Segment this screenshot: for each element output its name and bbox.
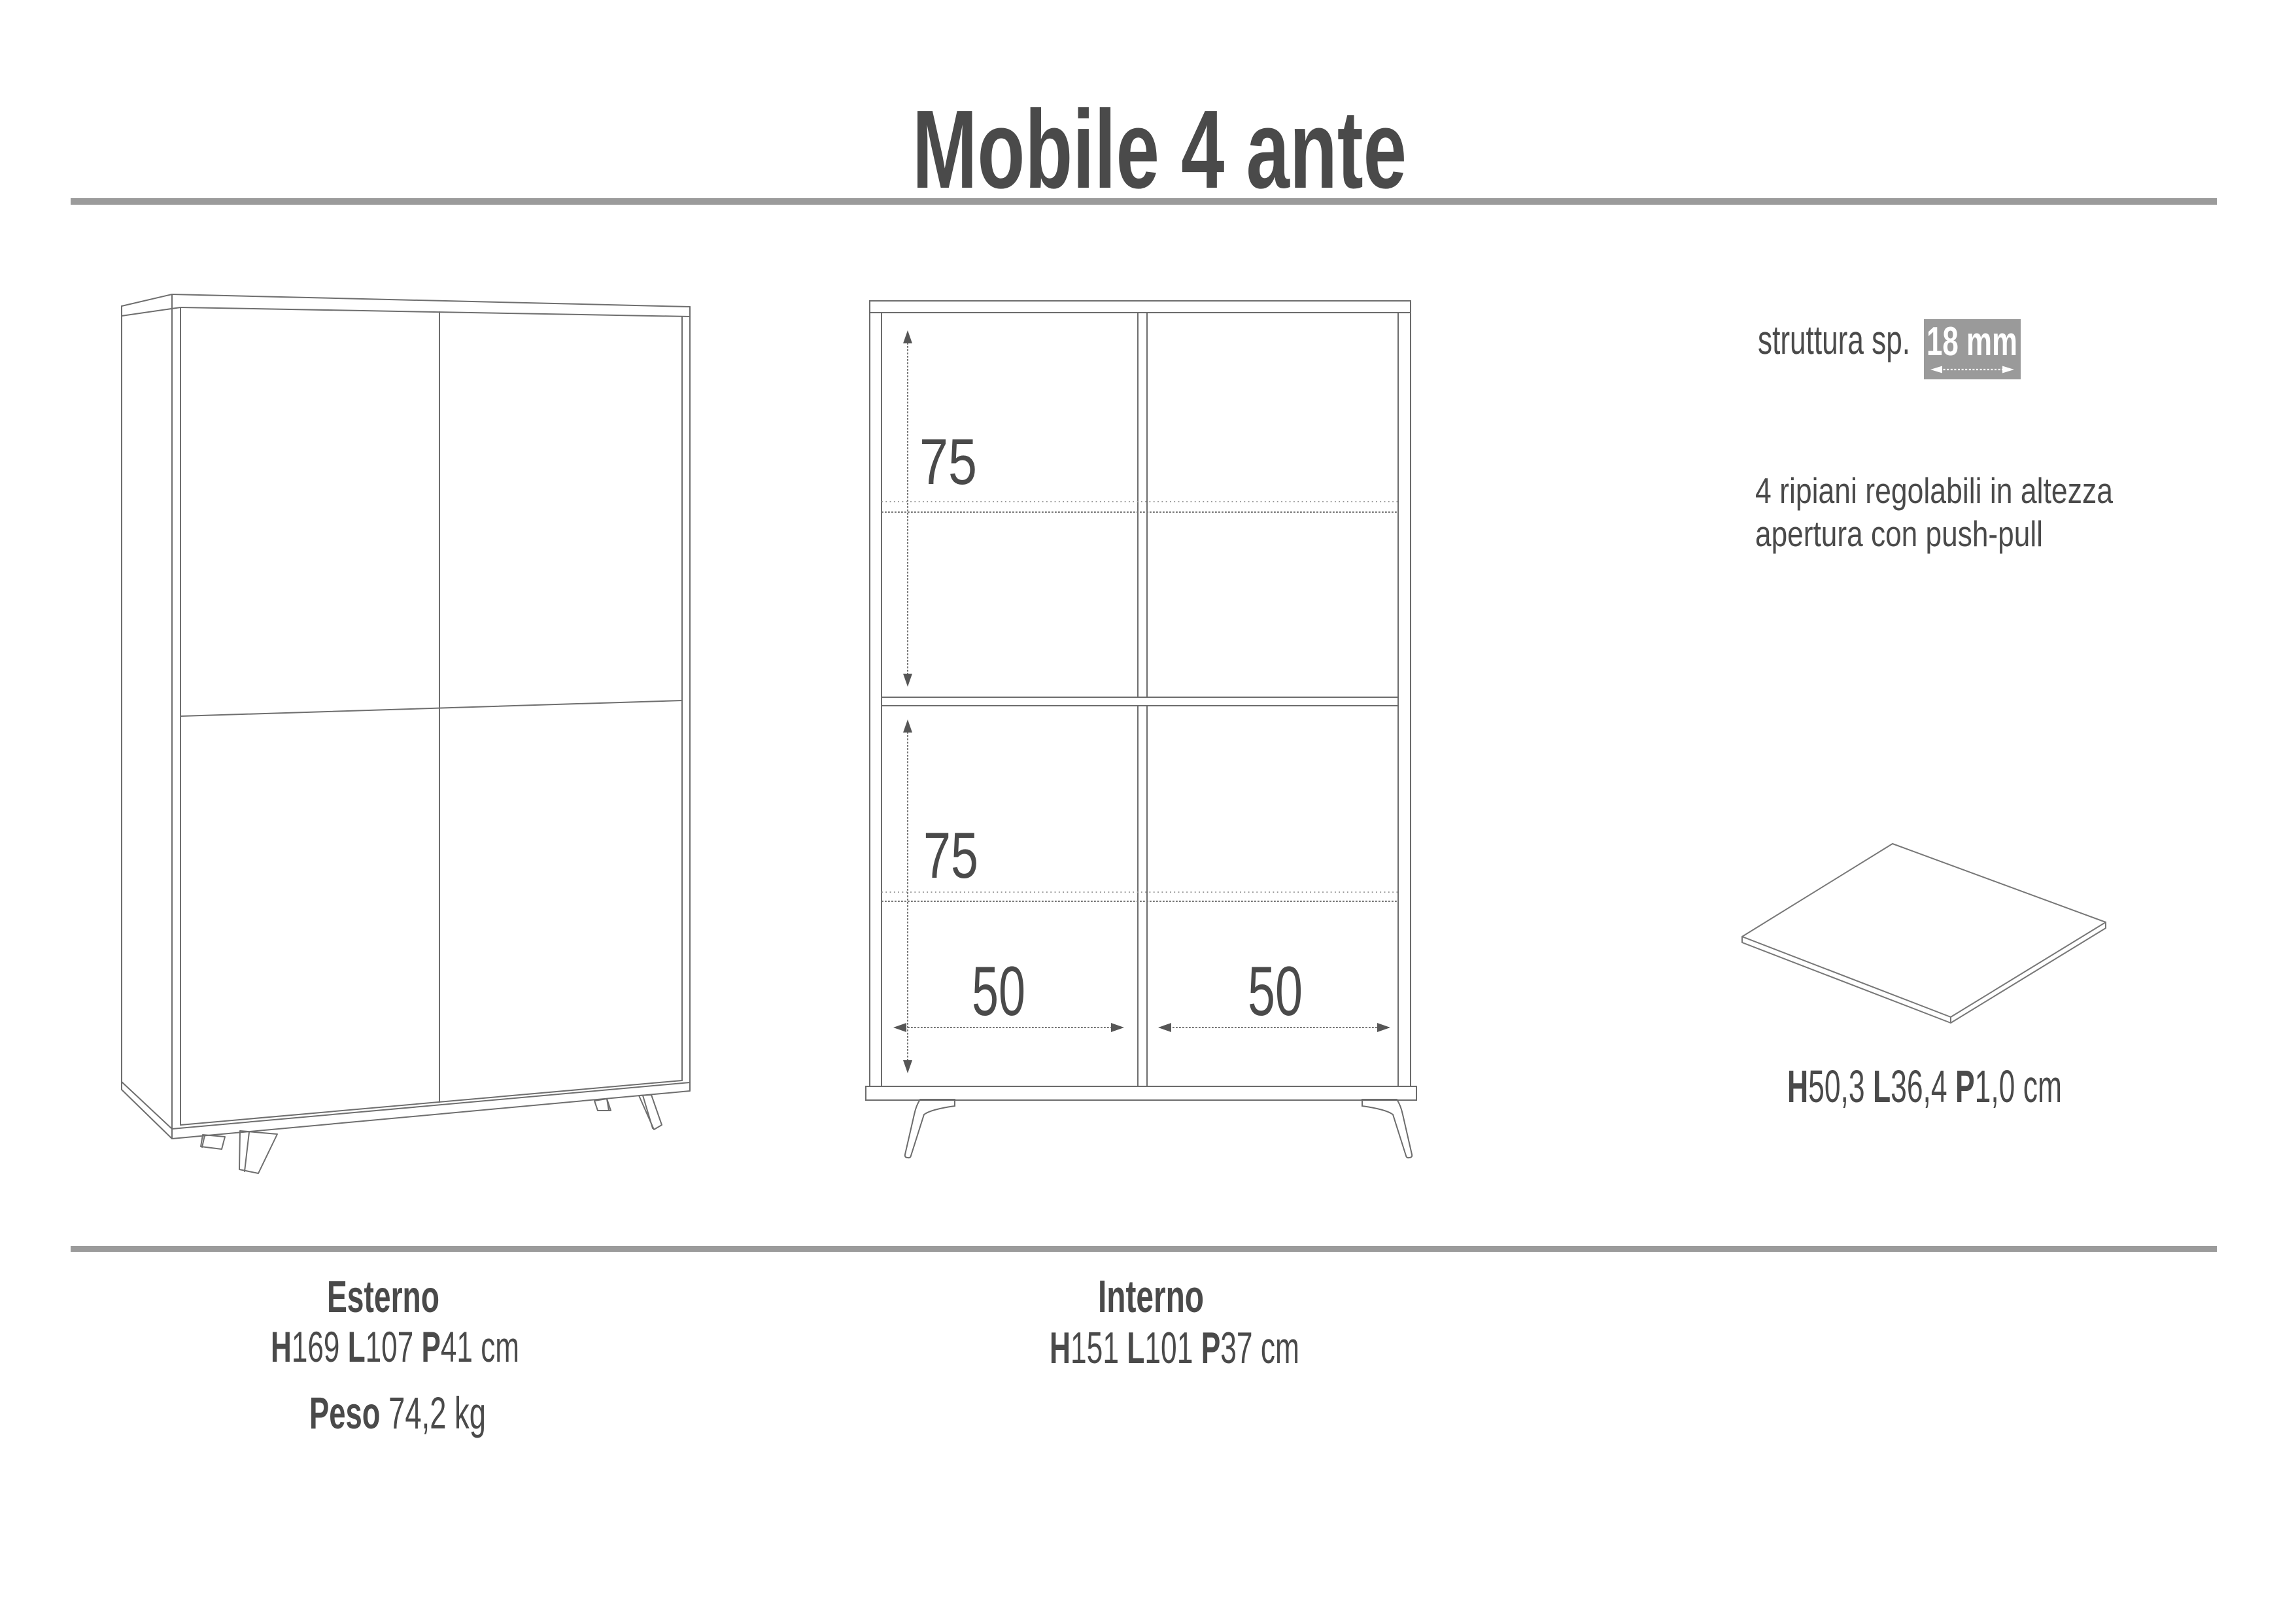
svg-text:75: 75: [919, 425, 977, 498]
svg-text:75: 75: [923, 819, 978, 891]
svg-text:struttura sp.: struttura sp.: [1758, 318, 1910, 363]
svg-text:50: 50: [972, 952, 1025, 1030]
svg-text:Esterno: Esterno: [327, 1271, 439, 1322]
svg-text:apertura con push-pull: apertura con push-pull: [1755, 513, 2043, 554]
svg-text:H151 L101 P37 cm: H151 L101 P37 cm: [1050, 1323, 1299, 1373]
svg-text:H169 L107 P41 cm: H169 L107 P41 cm: [271, 1322, 519, 1371]
svg-text:50: 50: [1248, 952, 1303, 1030]
svg-text:Interno: Interno: [1098, 1271, 1204, 1322]
svg-text:18 mm: 18 mm: [1927, 319, 2017, 364]
svg-text:4 ripiani regolabili in altezz: 4 ripiani regolabili in altezza: [1755, 470, 2113, 511]
svg-text:Peso 74,2 kg: Peso 74,2 kg: [309, 1388, 486, 1438]
svg-text:Mobile 4 ante: Mobile 4 ante: [912, 88, 1407, 212]
svg-text:H50,3 L36,4 P1,0 cm: H50,3 L36,4 P1,0 cm: [1787, 1061, 2062, 1112]
